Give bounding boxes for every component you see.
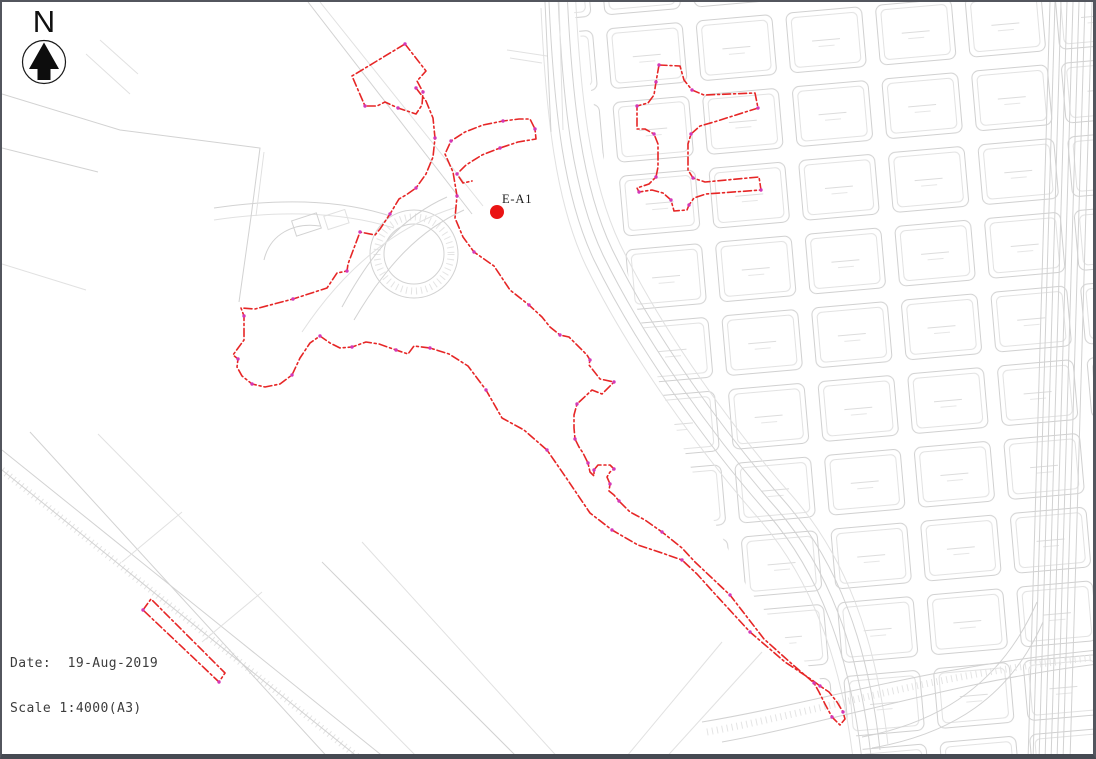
survey-node: [575, 402, 578, 405]
survey-node: [637, 190, 640, 193]
survey-node: [358, 230, 361, 233]
survey-node: [345, 269, 348, 272]
survey-node: [533, 127, 536, 130]
survey-node: [250, 382, 253, 385]
survey-node: [830, 715, 833, 718]
survey-node: [588, 358, 591, 361]
survey-node: [691, 176, 694, 179]
survey-node: [414, 86, 417, 89]
survey-node: [759, 188, 762, 191]
survey-node: [217, 680, 220, 683]
site-plan-drawing: E-A1: [2, 2, 1096, 759]
survey-node: [635, 104, 638, 107]
survey-node: [610, 528, 613, 531]
survey-node: [455, 172, 458, 175]
survey-node: [756, 106, 759, 109]
survey-node: [612, 380, 615, 383]
survey-node: [421, 90, 424, 93]
survey-node: [290, 373, 293, 376]
survey-node: [608, 482, 611, 485]
survey-node: [818, 684, 821, 687]
survey-node: [428, 346, 431, 349]
survey-node: [657, 63, 660, 66]
title-block: Date: 19-Aug-2019 Scale 1:4000(A3): [10, 626, 158, 746]
survey-node: [501, 119, 504, 122]
survey-node: [388, 212, 391, 215]
survey-node: [748, 630, 751, 633]
survey-node: [449, 139, 452, 142]
survey-node: [586, 461, 589, 464]
survey-node: [687, 203, 690, 206]
survey-node: [654, 175, 657, 178]
survey-node: [472, 250, 475, 253]
survey-node: [498, 146, 501, 149]
survey-node: [669, 198, 672, 201]
survey-node: [394, 348, 397, 351]
survey-node: [680, 558, 683, 561]
survey-node: [350, 345, 353, 348]
survey-node: [236, 357, 239, 360]
survey-node: [141, 608, 144, 611]
boundary-north-parcel: [352, 44, 426, 114]
survey-node: [396, 106, 399, 109]
survey-node: [592, 468, 595, 471]
survey-node: [291, 297, 294, 300]
survey-node: [617, 499, 620, 502]
survey-node: [652, 132, 655, 135]
survey-node: [433, 136, 436, 139]
survey-node: [455, 194, 458, 197]
upper-roads: [214, 2, 563, 260]
map-date: Date: 19-Aug-2019: [10, 656, 158, 671]
survey-node: [545, 448, 548, 451]
survey-node: [414, 186, 417, 189]
survey-node: [558, 333, 561, 336]
north-arrow: N: [18, 6, 70, 90]
interchange-ramps: [302, 197, 464, 332]
survey-node: [841, 710, 844, 713]
map-scale: Scale 1:4000(A3): [10, 701, 158, 716]
survey-node: [728, 593, 731, 596]
survey-node: [242, 314, 245, 317]
north-label: N: [18, 6, 70, 39]
survey-node: [612, 467, 615, 470]
survey-node: [812, 681, 815, 684]
map-canvas: E-A1 N Date: 19-Aug-2019 Scale 1:4000(A3…: [0, 0, 1096, 759]
basemap-linework: [2, 2, 1096, 759]
survey-node: [363, 104, 366, 107]
survey-node: [403, 42, 406, 45]
survey-node: [689, 132, 692, 135]
survey-node: [573, 437, 576, 440]
survey-node: [690, 88, 693, 91]
survey-node: [318, 334, 321, 337]
north-arrow-icon: [21, 39, 67, 85]
survey-node: [654, 80, 657, 83]
survey-node: [484, 388, 487, 391]
survey-node: [660, 530, 663, 533]
site-marker-label: E-A1: [502, 192, 532, 206]
survey-node: [527, 303, 530, 306]
site-marker-dot: [490, 205, 504, 219]
